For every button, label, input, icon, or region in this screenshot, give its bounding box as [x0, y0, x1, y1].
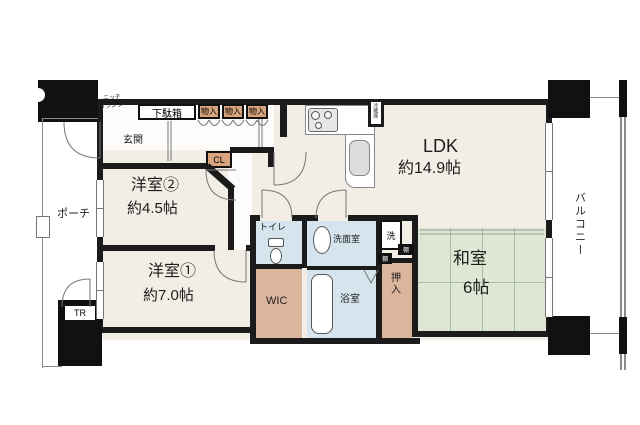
- western1-size: 約7.0帖: [143, 288, 194, 304]
- refrigerator-label: 冷蔵庫: [372, 103, 377, 118]
- wic-label: WIC: [266, 296, 287, 308]
- storage-box: 物入: [222, 104, 244, 119]
- toilet-label: トイレ: [259, 223, 286, 232]
- wall: [95, 327, 256, 333]
- western2-name: 洋室②: [131, 178, 179, 195]
- wall: [412, 215, 418, 337]
- western1-name: 洋室①: [148, 264, 196, 281]
- oshiire-label: 押入: [388, 272, 399, 296]
- balcony-rail-post: [619, 80, 627, 117]
- washroom-label: 洗面室: [333, 235, 360, 244]
- trunk-room-label: TR: [74, 308, 86, 318]
- window-tick: [96, 290, 104, 291]
- washbasin: [313, 226, 331, 254]
- stove-burner: [324, 111, 332, 119]
- stove-burner: [311, 111, 320, 120]
- ldk-name: LDK: [423, 137, 458, 156]
- door-arc-entrance: [64, 122, 100, 158]
- stove-burner: [315, 122, 322, 129]
- wall: [250, 338, 420, 344]
- storage-box: 物入: [198, 104, 220, 119]
- floorplan: 冷蔵庫 TR 下駄箱 物入 物入 物入 CL 洗 棚 棚: [0, 0, 640, 425]
- shoe-cabinet: 下駄箱: [138, 104, 196, 120]
- wall: [307, 266, 377, 270]
- trunk-room: TR: [63, 304, 97, 322]
- japanese-room-name: 和室: [453, 250, 487, 268]
- shoe-cabinet-label: 下駄箱: [152, 105, 182, 120]
- pillar-notch: [31, 88, 45, 102]
- pillar: [548, 316, 590, 355]
- storage-box: 物入: [246, 104, 268, 119]
- bathroom-label: 浴室: [340, 295, 360, 306]
- laundry-label: 洗: [386, 229, 395, 242]
- window-tick: [96, 208, 104, 209]
- shelf-label: 棚: [382, 254, 388, 263]
- wall: [228, 186, 234, 250]
- wall: [97, 163, 207, 169]
- wall: [250, 215, 260, 221]
- toilet-tank: [268, 238, 284, 247]
- meter-box: [36, 216, 50, 238]
- ldk-size: 約14.9帖: [398, 161, 461, 178]
- porch-edge: [42, 118, 43, 368]
- storage-box-label: 物入: [225, 106, 241, 117]
- toilet-bowl: [270, 248, 282, 264]
- balcony-label: バルコニー: [573, 192, 585, 257]
- pillar: [548, 80, 590, 118]
- kitchen-sink: [349, 140, 370, 176]
- storage-box-label: 物入: [201, 106, 217, 117]
- wall: [302, 221, 307, 268]
- bathtub: [311, 274, 333, 334]
- niche-counter-label-line1: ニッチ: [103, 94, 121, 102]
- shelf: 棚: [398, 244, 414, 255]
- hall-closet: CL: [206, 151, 232, 168]
- wall: [268, 153, 274, 167]
- western2-size: 約4.5帖: [127, 201, 178, 217]
- window-tick: [545, 277, 553, 278]
- hall-closet-label: CL: [213, 155, 225, 165]
- wall: [256, 264, 302, 269]
- wall: [412, 331, 552, 337]
- wall: [280, 99, 287, 137]
- balcony-rail-post: [619, 317, 627, 354]
- porch-edge: [42, 366, 62, 367]
- japanese-room-size: 6帖: [463, 279, 489, 297]
- wall: [97, 245, 215, 251]
- entrance-label: 玄関: [123, 136, 143, 147]
- porch-edge: [42, 118, 98, 119]
- window-tick: [545, 171, 553, 172]
- pillar: [38, 80, 98, 122]
- porch-label: ポーチ: [57, 209, 90, 221]
- shelf: 棚: [378, 253, 392, 264]
- wall: [250, 215, 256, 340]
- storage-box-label: 物入: [249, 106, 265, 117]
- shelf-label: 棚: [403, 245, 409, 254]
